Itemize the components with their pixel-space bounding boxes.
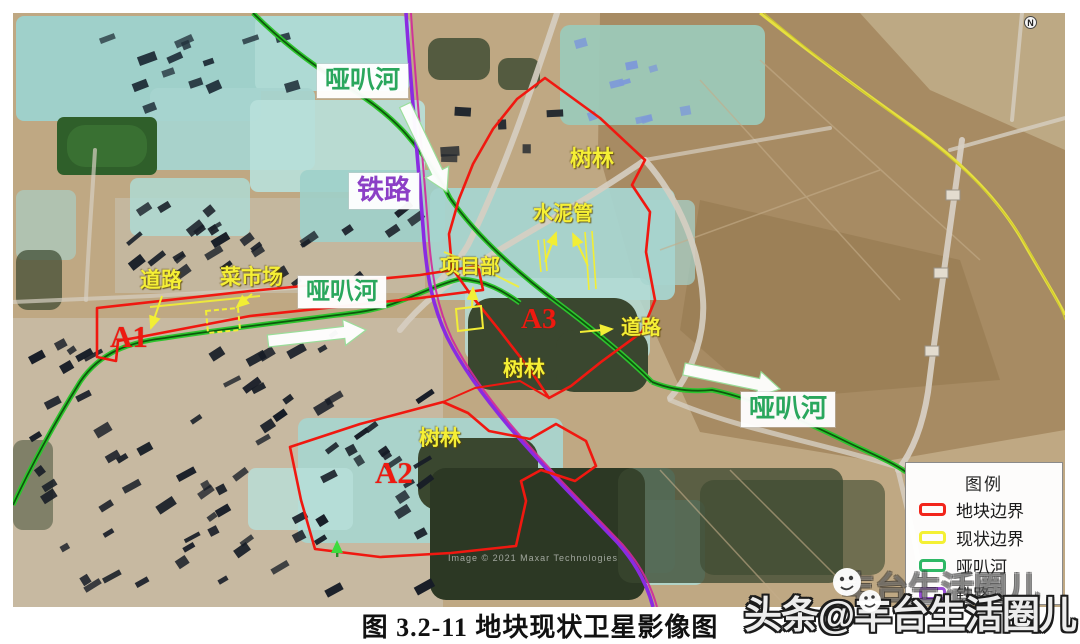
legend-item-railway: 铁路 [906,580,1062,607]
status-boundary-swatch [919,531,946,544]
label-project-office: 项目部 [440,256,500,278]
legend-title: 图例 [906,470,1062,495]
north-compass-icon: N [1024,16,1037,29]
river-swatch [919,559,946,572]
imagery-attribution: Image © 2021 Maxar Technologies [448,553,618,563]
label-river-top: 哑叭河 [317,64,408,98]
label-parcel-a3: A3 [521,304,556,336]
label-road-west: 道路 [140,269,182,292]
figure-caption: 图 3.2-11 地块现状卫星影像图 [0,607,1080,644]
label-forest-ne: 树林 [570,147,614,171]
legend-item-river: 哑叭河 [906,552,1062,579]
label-market: 菜市场 [220,266,283,289]
label-river-se: 哑叭河 [741,392,835,427]
parcel-boundary-swatch [919,503,946,516]
label-railway: 铁路 [349,173,419,209]
label-forest-mid: 树林 [503,358,545,381]
label-parcel-a2: A2 [375,456,413,490]
legend-item-status-boundary: 现状边界 [906,524,1062,551]
label-forest-sw: 树林 [419,427,461,450]
railway-swatch [919,587,946,600]
label-parcel-a1: A1 [110,320,148,354]
legend-item-parcel-boundary: 地块边界 [906,496,1062,523]
label-cement-pipes: 水泥管 [533,203,593,225]
legend: 图例 地块边界 现状边界 哑叭河 铁路 [905,462,1063,605]
figure-page: N Image © 2021 Maxar Technologies 哑叭河 铁路… [0,0,1080,642]
label-river-mid: 哑叭河 [298,276,386,308]
label-road-east: 道路 [621,317,661,339]
